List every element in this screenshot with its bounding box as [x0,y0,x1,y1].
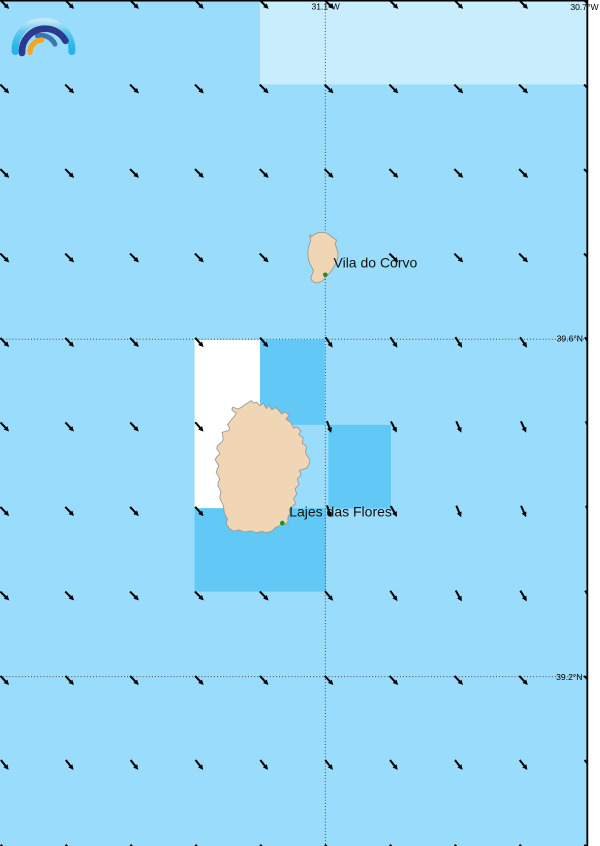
svg-text:31.1°W: 31.1°W [311,2,340,12]
svg-text:Vila do Corvo: Vila do Corvo [334,255,418,271]
svg-text:39.6°N: 39.6°N [557,334,583,344]
svg-text:39.2°N: 39.2°N [556,672,582,682]
svg-text:30.7°W: 30.7°W [570,2,599,12]
svg-text:Lajes das Flores: Lajes das Flores [289,503,392,519]
